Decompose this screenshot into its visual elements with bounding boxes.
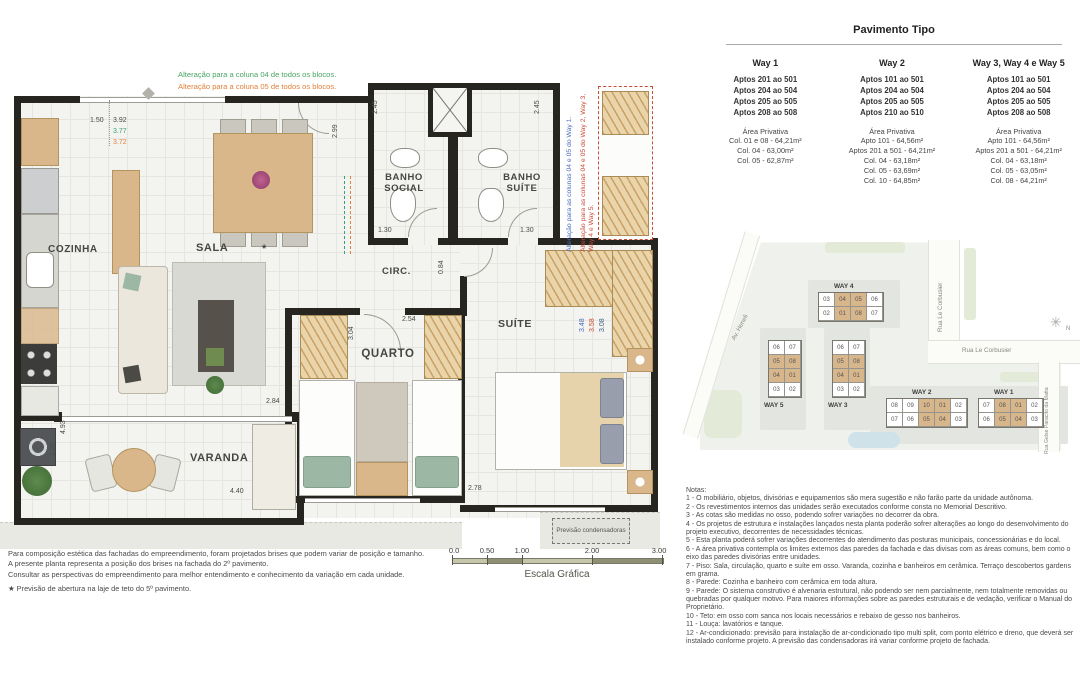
note-line: 11 - Louça: lavatórios e tanque.	[686, 621, 1080, 629]
footer-line: Para composição estética das fachadas do…	[8, 549, 460, 559]
area-line: Col. 05 - 62,87m²	[704, 156, 827, 166]
fridge	[21, 168, 59, 214]
unit-number-cell: 03	[833, 383, 849, 397]
column-header: Way 3, Way 4 e Way 5	[957, 58, 1080, 68]
area-line: Apto 101 - 64,56m²	[831, 136, 954, 146]
unit-row: 06050403	[979, 413, 1043, 427]
note-line: 6 - A área privativa contempla os limite…	[686, 546, 1080, 563]
scale-tick-label: 1.00	[515, 546, 530, 555]
street-label-rua-le-corbusier-h: Rua Le Corbusier	[962, 347, 1011, 354]
area-line: Aptos 201 a 501 - 64,21m²	[957, 146, 1080, 156]
area-line: Col. 10 - 64,85m²	[831, 176, 954, 186]
unit-number-cell: 04	[769, 369, 785, 383]
window	[305, 498, 420, 503]
unit-row: 0401	[769, 369, 801, 383]
apto-line: Aptos 208 ao 508	[957, 108, 1080, 119]
column-header: Way 1	[704, 58, 827, 68]
dining-chair	[282, 231, 308, 247]
scale-tick	[662, 555, 663, 565]
note-line: 7 - Piso: Sala, circulação, quarto e suí…	[686, 563, 1080, 580]
wall	[225, 96, 368, 103]
unit-number-cell: 02	[849, 383, 865, 397]
balcony-table	[112, 448, 156, 492]
unit-number-cell: 05	[919, 413, 935, 427]
dim-label: 4.93	[60, 420, 67, 434]
green-area	[964, 248, 976, 320]
wall	[285, 308, 360, 315]
bed-pillow	[415, 456, 459, 488]
sidewalk	[0, 522, 462, 549]
unit-number-cell: 03	[819, 293, 835, 307]
room-label-cozinha: COZINHA	[48, 244, 98, 255]
asterisk-marker: *	[262, 243, 267, 255]
apto-line: Aptos 101 ao 501	[957, 75, 1080, 86]
dim-label: 2.45	[372, 100, 379, 114]
suite-closet	[612, 250, 653, 357]
dim-label: 2.54	[402, 316, 416, 323]
apto-line: Aptos 208 ao 508	[704, 108, 827, 119]
notes-list: 1 - O mobiliário, objetos, divisórias e …	[686, 495, 1080, 646]
room-label-banho-social: BANHO SOCIAL	[372, 172, 436, 195]
pavimento-column-way2: Way 2 Aptos 101 ao 501Aptos 204 ao 504Ap…	[831, 58, 954, 186]
alt-closet	[602, 91, 649, 135]
dim-label: 2.99	[332, 124, 339, 138]
kitchen-cabinet	[21, 386, 59, 416]
building-grid-way1: 0708010206050403	[978, 398, 1044, 428]
footer-line: Consultar as perspectivas do empreendime…	[8, 570, 460, 580]
building-label-way2: WAY 2	[912, 389, 932, 396]
apto-line: Aptos 201 ao 501	[704, 75, 827, 86]
unit-number-cell: 01	[835, 307, 851, 321]
condenser-box: Previsão condensadoras	[552, 518, 630, 544]
building-label-way3: WAY 3	[828, 402, 848, 409]
elevator-shaft	[428, 83, 472, 137]
bed-pillow	[600, 424, 624, 464]
footer-line: A presente planta representa a posição d…	[8, 559, 460, 569]
nightstand	[627, 348, 653, 372]
notes-title: Notas:	[686, 487, 1080, 495]
unit-number-cell: 07	[785, 341, 801, 355]
area-title: Área Privativa	[704, 127, 827, 136]
note-line: 4 - Os projetos de estrutura e instalaçõ…	[686, 521, 1080, 538]
unit-number-cell: 06	[867, 293, 883, 307]
unit-number-cell: 01	[1011, 399, 1027, 413]
unit-number-cell: 01	[935, 399, 951, 413]
dim-label: 0.84	[438, 260, 445, 274]
apto-list: Aptos 201 ao 501Aptos 204 ao 504Aptos 20…	[704, 75, 827, 119]
scale-tick-label: 2.00	[585, 546, 600, 555]
sofa-pillow	[123, 365, 142, 384]
bathroom-sink	[478, 148, 508, 168]
compass-icon: ✳	[1050, 314, 1062, 331]
kitchen-cabinet	[21, 118, 59, 166]
dim-label: 2.78	[468, 485, 482, 492]
unit-number-cell: 01	[849, 369, 865, 383]
unit-number-cell: 09	[903, 399, 919, 413]
unit-number-cell: 04	[935, 413, 951, 427]
wall	[368, 238, 408, 245]
title-rule	[726, 44, 1062, 45]
bathroom-sink	[390, 148, 420, 168]
wardrobe	[300, 315, 348, 379]
scale-tick	[487, 555, 488, 565]
nightstand	[356, 462, 408, 496]
unit-number-cell: 02	[951, 399, 967, 413]
nightstand	[627, 470, 653, 494]
scale-label: Escala Gráfica	[452, 569, 662, 580]
alt-closet	[602, 176, 649, 236]
area-line: Aptos 201 a 501 - 64,21m²	[831, 146, 954, 156]
unit-number-cell: 07	[979, 399, 995, 413]
unit-number-cell: 06	[833, 341, 849, 355]
apto-line: Aptos 205 ao 505	[957, 97, 1080, 108]
unit-number-cell: 08	[849, 355, 865, 369]
building-grid-way5: 0607050804010302	[768, 340, 802, 398]
plant	[206, 376, 224, 394]
apto-line: Aptos 204 ao 504	[831, 86, 954, 97]
room-label-suite: SUÍTE	[498, 318, 532, 330]
unit-number-cell: 06	[903, 413, 919, 427]
plant	[22, 466, 52, 496]
pavimento-column-way345: Way 3, Way 4 e Way 5 Aptos 101 ao 501Apt…	[957, 58, 1080, 186]
kitchen-island	[112, 170, 140, 274]
street-vertical	[928, 240, 960, 346]
suite-closet	[545, 250, 617, 307]
dim-label: 3.04	[348, 326, 355, 340]
note-line: 3 - As cotas são medidas no osso, podend…	[686, 512, 1080, 520]
area-line: Col. 04 - 63,18m²	[831, 156, 954, 166]
pavimento-columns: Way 1 Aptos 201 ao 501Aptos 204 ao 504Ap…	[704, 58, 1080, 186]
unit-row: 0607	[769, 341, 801, 355]
sofa-pillow	[123, 273, 142, 292]
area-line: Col. 01 e 08 - 64,21m²	[704, 136, 827, 146]
unit-row: 07080102	[979, 399, 1043, 413]
unit-number-cell: 07	[849, 341, 865, 355]
unit-number-cell: 02	[819, 307, 835, 321]
scale-tick	[452, 555, 453, 565]
wardrobe	[424, 315, 462, 379]
note-line: 2 - Os revestimentos internos das unidad…	[686, 504, 1080, 512]
room-label-sala: SALA	[196, 242, 228, 254]
scale-tick	[592, 555, 593, 565]
apto-line: Aptos 101 ao 501	[831, 75, 954, 86]
compass-north-label: N	[1066, 326, 1070, 332]
annotation-col04: Alteração para a coluna 04 de todos os b…	[178, 70, 336, 79]
area-line: Col. 08 - 64,21m²	[957, 176, 1080, 186]
dim-label: 3.77	[113, 128, 127, 135]
unit-row: 0401	[833, 369, 865, 383]
room-label-circ: CIRC.	[382, 266, 411, 277]
footer-star-note: ★ Previsão de abertura na laje de teto d…	[8, 584, 460, 594]
bed-pillow	[303, 456, 351, 488]
building-label-way1: WAY 1	[994, 389, 1014, 396]
note-line: 5 - Esta planta poderá sofrer variações …	[686, 537, 1080, 545]
apto-line: Aptos 204 ao 504	[704, 86, 827, 97]
unit-number-cell: 05	[833, 355, 849, 369]
unit-number-cell: 08	[851, 307, 867, 321]
area-line: Col. 05 - 63,05m²	[957, 166, 1080, 176]
street-label-rua-gelse: Rua Gelse Paracito da Matta	[1044, 387, 1050, 454]
area-list: Apto 101 - 64,56m²Aptos 201 a 501 - 64,2…	[957, 136, 1080, 186]
unit-row: 0508	[769, 355, 801, 369]
unit-number-cell: 04	[833, 369, 849, 383]
bed-pillow	[600, 378, 624, 418]
note-line: 9 - Parede: O sistema construtivo é alve…	[686, 588, 1080, 613]
kitchen-sink	[26, 252, 54, 288]
unit-number-cell: 02	[785, 383, 801, 397]
dim-label: 1.30	[520, 227, 534, 234]
elevator-x-icon	[433, 88, 467, 132]
unit-number-cell: 03	[1027, 413, 1043, 427]
room-label-varanda: VARANDA	[190, 452, 248, 464]
unit-row: 0809100102	[887, 399, 967, 413]
scale-bar: 0.0 0.50 1.00 2.00 3.00 Escala Gráfica	[452, 546, 662, 586]
annotation-way1-vertical: Alteração para as colunas 04 e 05 do Way…	[566, 82, 573, 252]
tv-deco	[206, 348, 224, 366]
dim-label: 1.20	[50, 442, 57, 456]
unit-row: 03040506	[819, 293, 883, 307]
wall	[405, 308, 465, 315]
room-label-quarto: QUARTO	[340, 348, 436, 360]
unit-number-cell: 07	[867, 307, 883, 321]
dim-label: 3.48	[579, 318, 586, 332]
pool	[848, 432, 900, 448]
street-label-rua-le-corbusier-v: Rua Le Corbusier	[937, 283, 944, 332]
bedroom-rug	[356, 382, 408, 462]
pavimento-column-way1: Way 1 Aptos 201 ao 501Aptos 204 ao 504Ap…	[704, 58, 827, 186]
area-line: Col. 05 - 63,69m²	[831, 166, 954, 176]
unit-number-cell: 08	[995, 399, 1011, 413]
apto-list: Aptos 101 ao 501Aptos 204 ao 504Aptos 20…	[831, 75, 954, 119]
building-grid-way3: 0607050804010302	[832, 340, 866, 398]
unit-row: 0508	[833, 355, 865, 369]
notes-section: Notas: 1 - O mobiliário, objetos, divisó…	[686, 487, 1080, 646]
kitchen-shelf	[21, 308, 59, 344]
dim-label: 3.92	[113, 117, 127, 124]
dim-label: 3.72	[113, 139, 127, 146]
scale-tick-label: 0.0	[449, 546, 459, 555]
dim-label: 3.08	[599, 318, 606, 332]
balcony-cabinet	[252, 424, 296, 510]
unit-number-cell: 07	[887, 413, 903, 427]
wall	[438, 238, 508, 245]
apto-list: Aptos 101 ao 501Aptos 204 ao 504Aptos 20…	[957, 75, 1080, 119]
window	[495, 507, 605, 512]
unit-number-cell: 05	[995, 413, 1011, 427]
dim-label: 3.58	[589, 318, 596, 332]
area-list: Col. 01 e 08 - 64,21m²Col. 04 - 63,00m²C…	[704, 136, 827, 166]
unit-row: 0302	[833, 383, 865, 397]
unit-number-cell: 02	[1027, 399, 1043, 413]
wall	[14, 96, 80, 103]
area-list: Apto 101 - 64,56m²Aptos 201 a 501 - 64,2…	[831, 136, 954, 186]
wall	[460, 276, 467, 316]
scale-tick-label: 3.00	[652, 546, 667, 555]
unit-number-cell: 05	[769, 355, 785, 369]
note-line: 12 - Ar-condicionado: previsão para inst…	[686, 630, 1080, 647]
unit-number-cell: 08	[887, 399, 903, 413]
apto-line: Aptos 205 ao 505	[831, 97, 954, 108]
wall	[14, 518, 304, 525]
dim-guide-line	[109, 100, 110, 146]
unit-number-cell: 06	[769, 341, 785, 355]
stove	[21, 344, 57, 384]
dim-label: 2.45	[534, 100, 541, 114]
unit-number-cell: 04	[1011, 413, 1027, 427]
note-line: 10 - Teto: em osso com sanca nos locais …	[686, 613, 1080, 621]
dim-label: 1.30	[378, 227, 392, 234]
unit-row: 0706050403	[887, 413, 967, 427]
unit-row: 02010807	[819, 307, 883, 321]
dim-label: 4.40	[230, 488, 244, 495]
footer-disclaimer: Para composição estética das fachadas do…	[8, 549, 460, 594]
apto-line: Aptos 205 ao 505	[704, 97, 827, 108]
scale-tick-label: 0.50	[480, 546, 495, 555]
unit-number-cell: 03	[769, 383, 785, 397]
scale-tick	[522, 555, 523, 565]
apto-line: Aptos 210 ao 510	[831, 108, 954, 119]
window	[80, 97, 225, 103]
footer-lines: Para composição estética das fachadas do…	[8, 549, 460, 580]
wall	[553, 83, 560, 245]
unit-number-cell: 08	[785, 355, 801, 369]
site-map: Av. Heneli Rua Le Corbusier Rua Le Corbu…	[700, 240, 1080, 484]
unit-row: 0302	[769, 383, 801, 397]
unit-number-cell: 04	[835, 293, 851, 307]
area-line: Apto 101 - 64,56m²	[957, 136, 1080, 146]
pavimento-title: Pavimento Tipo	[710, 24, 1078, 36]
unit-row: 0607	[833, 341, 865, 355]
note-line: 8 - Parede: Cozinha e banheiro com cerâm…	[686, 579, 1080, 587]
building-grid-way2: 08091001020706050403	[886, 398, 968, 428]
dim-label: 1.50	[90, 117, 104, 124]
alt-wall-line-orange	[350, 176, 351, 254]
building-grid-way4: 0304050602010807	[818, 292, 884, 322]
dim-label: 2.84	[266, 398, 280, 405]
note-line: 1 - O mobiliário, objetos, divisórias e …	[686, 495, 1080, 503]
building-label-way4: WAY 4	[834, 283, 854, 290]
annotation-way2345-vertical: Alteração para as colunas 04 e 05 do Way…	[580, 80, 596, 252]
unit-number-cell: 05	[851, 293, 867, 307]
area-title: Área Privativa	[831, 127, 954, 136]
column-header: Way 2	[831, 58, 954, 68]
window	[62, 416, 292, 422]
wall	[448, 137, 458, 238]
area-line: Col. 04 - 63,18m²	[957, 156, 1080, 166]
apto-line: Aptos 204 ao 504	[957, 86, 1080, 97]
room-label-banho-suite: BANHO SUÍTE	[494, 172, 550, 195]
scale-bar-line	[452, 558, 664, 564]
unit-number-cell: 03	[951, 413, 967, 427]
annotation-col05: Alteração para a coluna 05 de todos os b…	[178, 82, 336, 91]
unit-number-cell: 06	[979, 413, 995, 427]
unit-number-cell: 01	[785, 369, 801, 383]
green-area	[825, 242, 905, 253]
area-line: Col. 04 - 63,00m²	[704, 146, 827, 156]
area-title: Área Privativa	[957, 127, 1080, 136]
table-flowers	[252, 171, 270, 189]
unit-number-cell: 10	[919, 399, 935, 413]
alt-wall-line-teal	[344, 176, 345, 254]
building-label-way5: WAY 5	[764, 402, 784, 409]
